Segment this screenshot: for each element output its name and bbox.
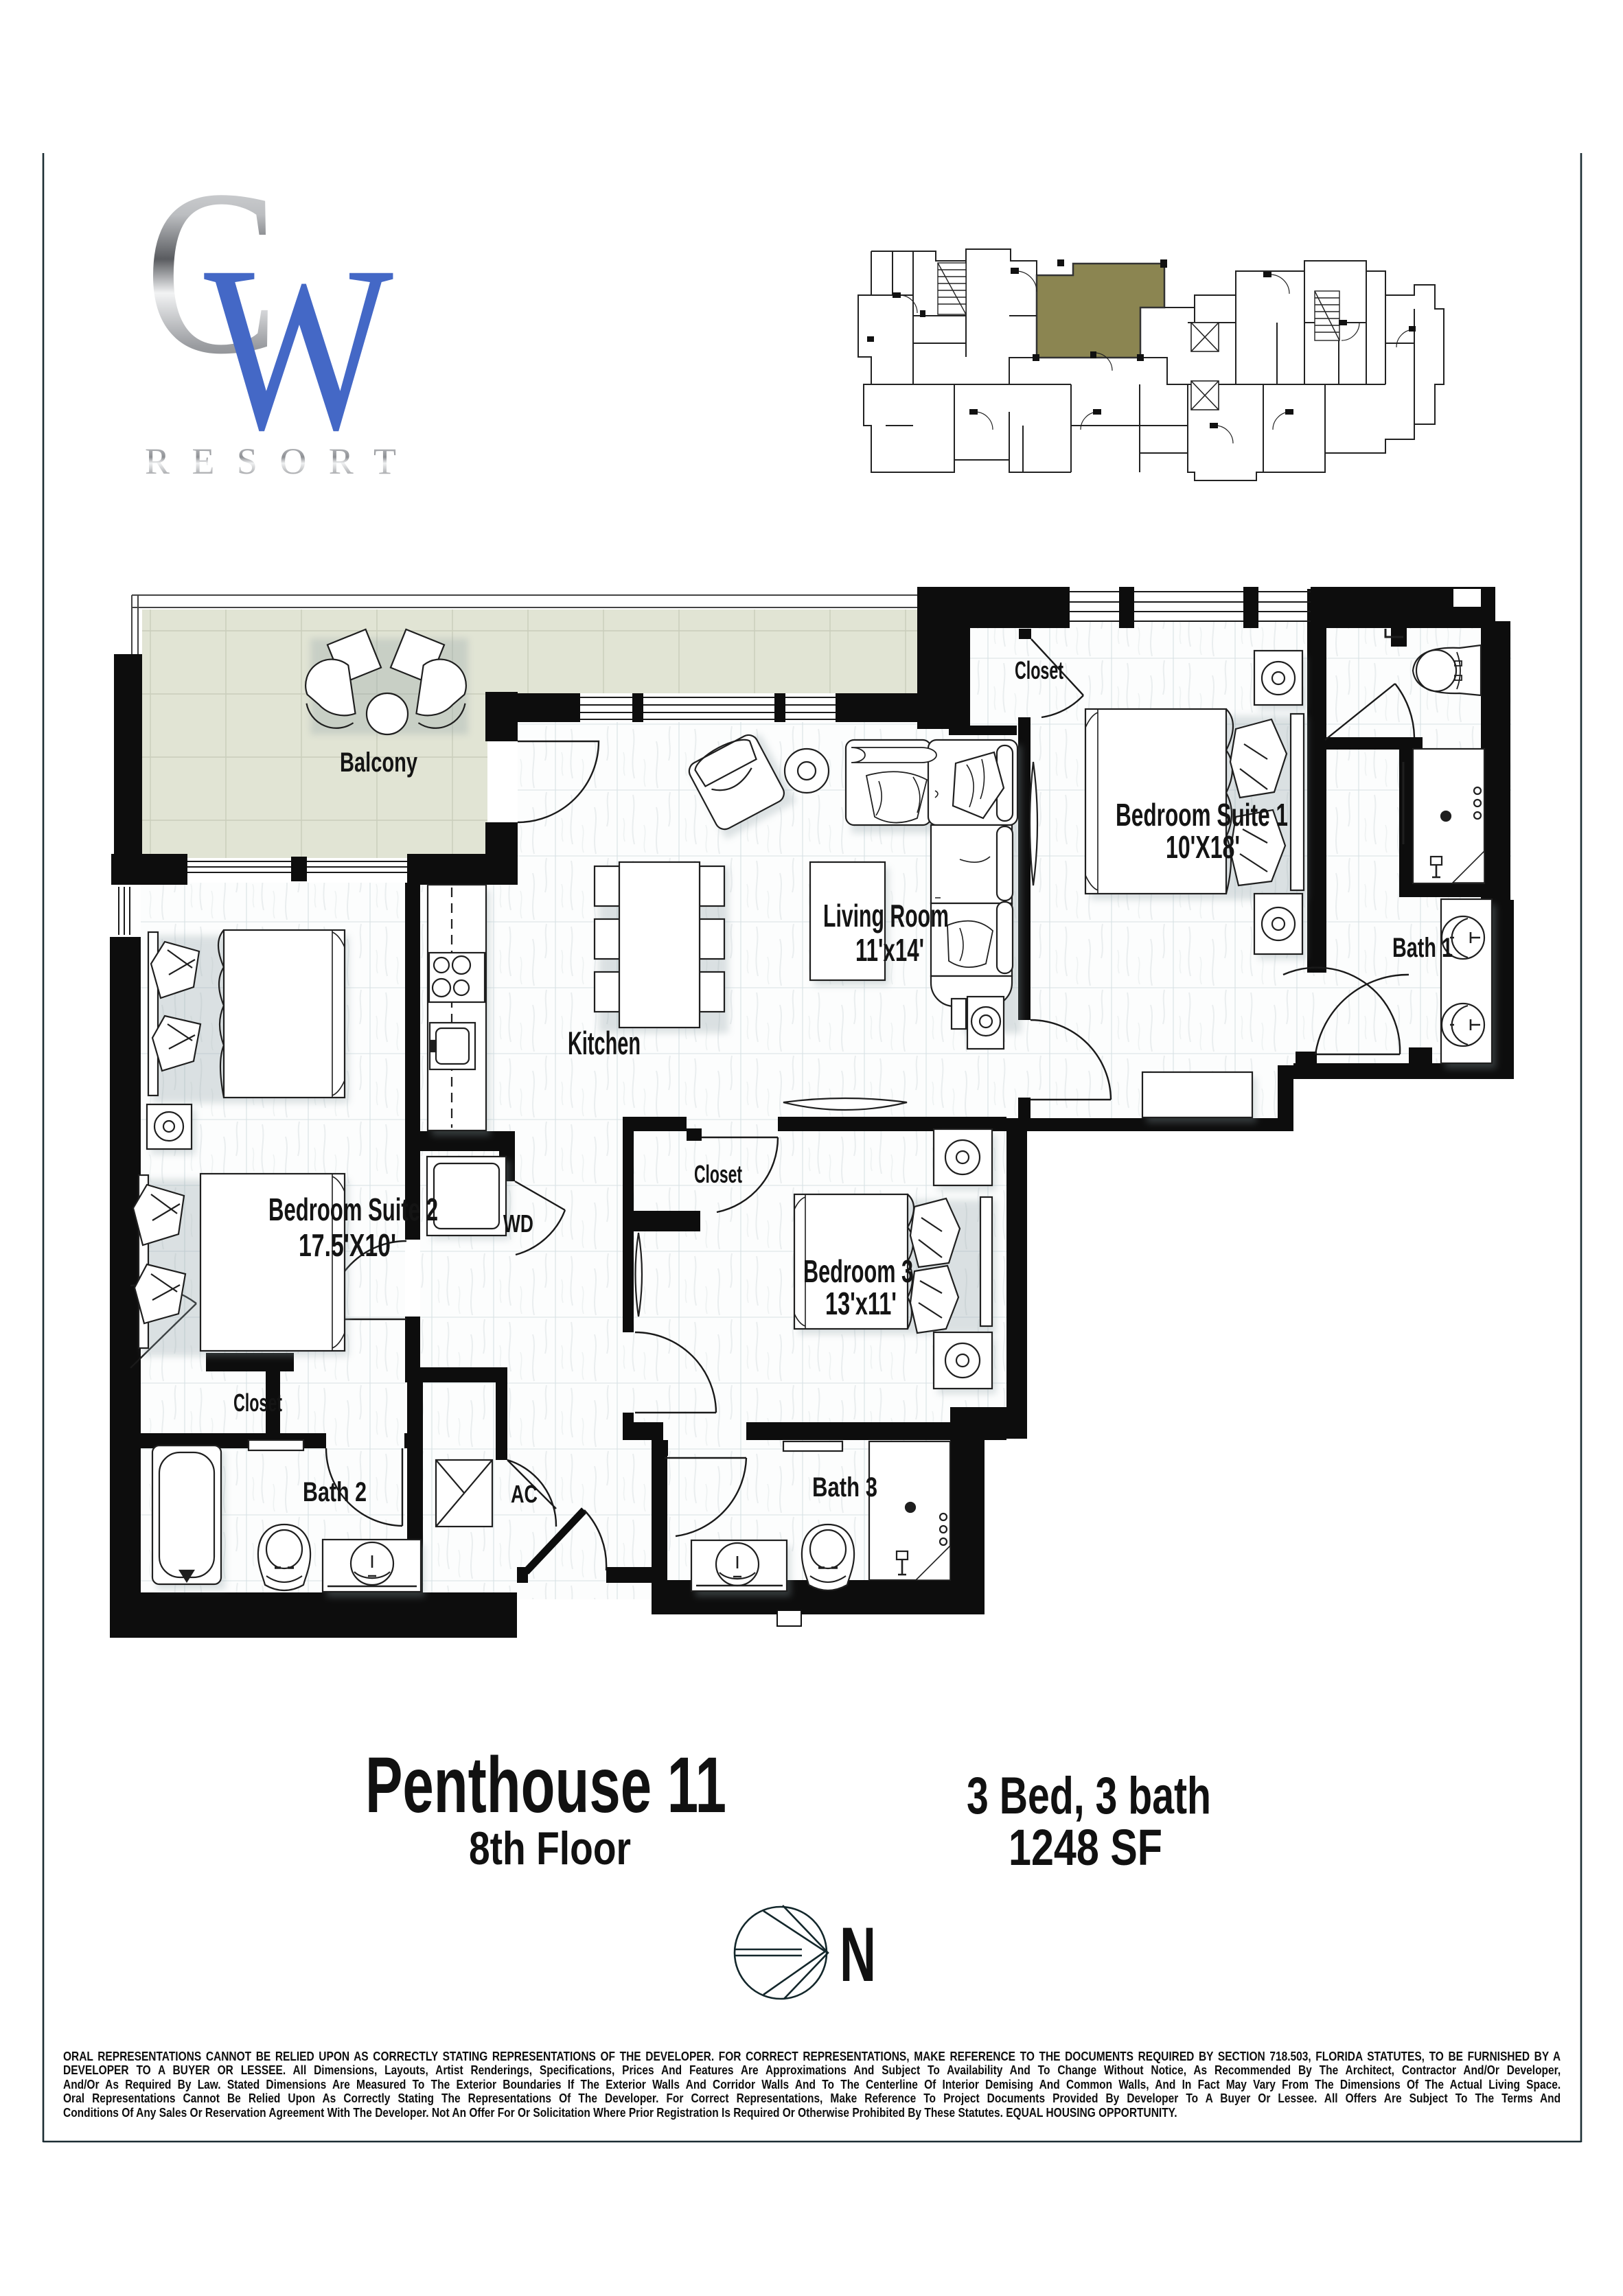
svg-text:17.5'X10': 17.5'X10' <box>299 1227 396 1263</box>
svg-text:WD: WD <box>503 1209 533 1238</box>
svg-text:Living Room: Living Room <box>823 898 949 934</box>
svg-text:Bath 1: Bath 1 <box>1392 933 1453 963</box>
svg-text:N: N <box>840 1912 876 1997</box>
svg-text:1248 SF: 1248 SF <box>1009 1819 1162 1876</box>
svg-text:Bath 2: Bath 2 <box>303 1477 367 1507</box>
svg-text:10'X18': 10'X18' <box>1166 829 1240 865</box>
svg-text:Penthouse 11: Penthouse 11 <box>365 1741 726 1829</box>
svg-text:Closet: Closet <box>694 1160 742 1188</box>
svg-text:Balcony: Balcony <box>340 747 418 778</box>
svg-text:13'x11': 13'x11' <box>825 1286 897 1321</box>
svg-text:Closet: Closet <box>1015 656 1063 684</box>
svg-text:Bedroom Suite 1: Bedroom Suite 1 <box>1116 797 1288 833</box>
svg-text:Bedroom Suite 2: Bedroom Suite 2 <box>268 1192 438 1227</box>
svg-text:Bath 3: Bath 3 <box>812 1472 877 1503</box>
svg-text:11'x14': 11'x14' <box>855 932 924 968</box>
svg-text:Closet: Closet <box>233 1389 282 1417</box>
svg-text:Kitchen: Kitchen <box>568 1025 641 1061</box>
svg-text:AC: AC <box>511 1480 538 1508</box>
svg-text:W: W <box>204 218 395 479</box>
svg-text:3 Bed, 3 bath: 3 Bed, 3 bath <box>967 1767 1211 1825</box>
svg-text:8th Floor: 8th Floor <box>469 1822 631 1875</box>
svg-text:Bedroom 3: Bedroom 3 <box>803 1253 913 1289</box>
